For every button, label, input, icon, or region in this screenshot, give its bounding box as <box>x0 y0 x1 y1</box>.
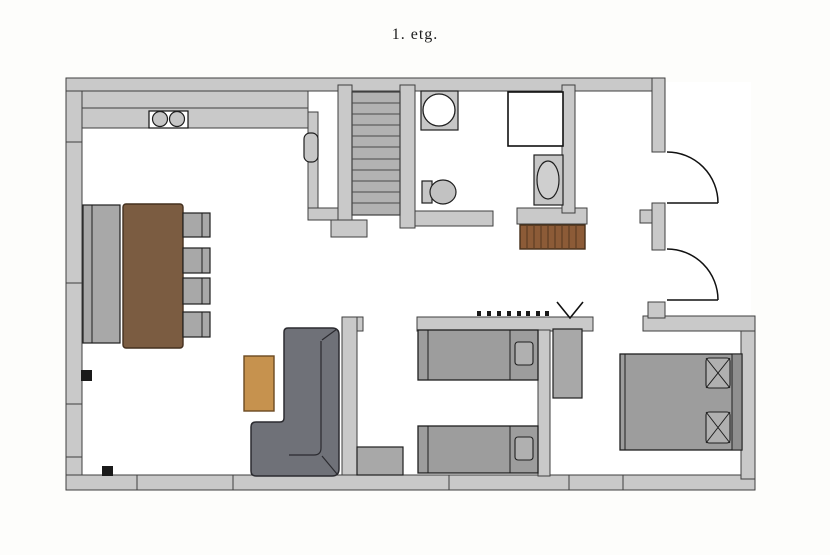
stair-flight <box>352 92 400 215</box>
wall-left <box>66 78 82 490</box>
wall-outlet <box>102 466 113 476</box>
sink-bowl <box>170 112 185 127</box>
single-bed-1 <box>418 330 538 380</box>
wall-bath-right <box>562 85 575 213</box>
shower-cabin <box>508 92 563 146</box>
chair <box>183 248 210 273</box>
toilet-bowl <box>430 180 456 204</box>
wall-entry-lower <box>648 302 665 318</box>
radiator <box>304 133 318 162</box>
wall-stair-left <box>338 85 352 220</box>
wall-living-divider <box>342 317 357 475</box>
washing-machine-drum <box>423 94 455 126</box>
wardrobe <box>553 329 582 398</box>
wall-kidsroom-right <box>538 330 550 476</box>
staircase <box>352 92 400 215</box>
wall-entry-upper <box>652 78 665 152</box>
wall-bath-bottom-left <box>415 211 493 226</box>
chair <box>183 312 210 337</box>
pillow <box>515 437 533 460</box>
dining-table <box>123 204 183 348</box>
washbasin-bowl <box>537 161 559 199</box>
pillow <box>515 342 533 365</box>
floorplan-drawing <box>0 0 830 555</box>
coffee-table <box>244 356 274 411</box>
wall-entry-notch <box>640 210 652 223</box>
wall-bath-left <box>400 85 415 228</box>
dresser <box>357 447 403 475</box>
sink-bowl <box>153 112 168 127</box>
toilet <box>422 180 456 204</box>
wall-stair-foot <box>331 220 367 237</box>
wall-kitchen-foot <box>308 208 338 220</box>
floorplan-page: 1. etg. <box>0 0 830 555</box>
wall-bottom <box>66 475 755 490</box>
single-bed-2 <box>418 426 538 473</box>
wall-right-lower <box>741 316 755 479</box>
wall-outlet <box>81 370 92 381</box>
wall-bath-bottom-right <box>517 208 587 224</box>
hall-bench <box>520 225 585 249</box>
kitchen-island <box>83 205 120 343</box>
chair <box>183 213 210 237</box>
chair <box>183 278 210 304</box>
kitchen-counter <box>82 91 308 128</box>
wall-entry-mid <box>652 203 665 250</box>
headboard <box>732 354 742 450</box>
